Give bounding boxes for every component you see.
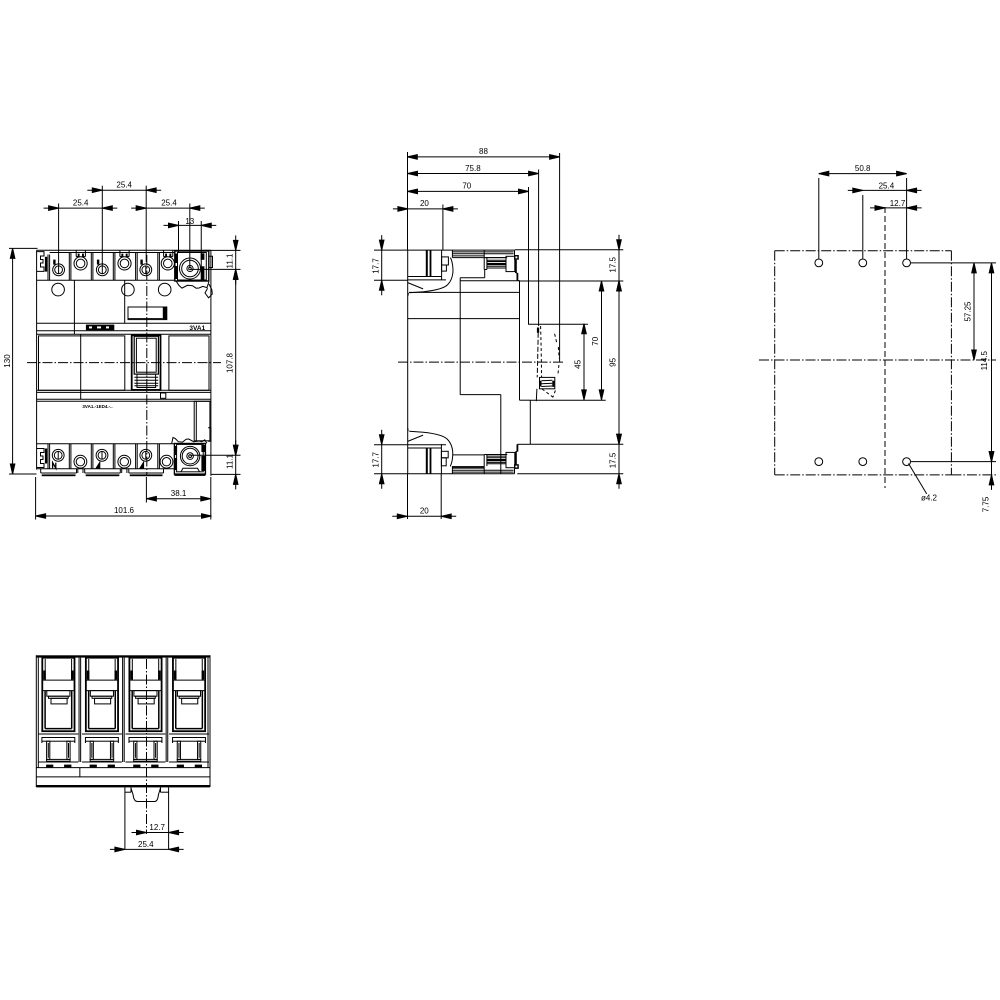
svg-text:17.7: 17.7 [372, 451, 381, 467]
svg-text:25.4: 25.4 [879, 182, 895, 191]
svg-text:70: 70 [591, 336, 600, 345]
svg-text:130: 130 [3, 354, 12, 368]
svg-text:50.8: 50.8 [855, 164, 871, 173]
svg-text:25.4: 25.4 [138, 840, 154, 849]
svg-text:17.5: 17.5 [608, 256, 617, 272]
svg-text:7.75: 7.75 [982, 496, 991, 512]
svg-text:20: 20 [420, 507, 429, 516]
svg-text:17.7: 17.7 [372, 258, 381, 274]
svg-text:ø4.2: ø4.2 [921, 494, 938, 503]
svg-text:13: 13 [185, 217, 194, 226]
svg-text:11.1: 11.1 [226, 453, 235, 469]
svg-text:70: 70 [462, 181, 471, 190]
svg-text:12.7: 12.7 [890, 199, 906, 208]
svg-text:114.5: 114.5 [980, 350, 989, 370]
svg-text:38.1: 38.1 [171, 489, 187, 498]
svg-text:88: 88 [479, 147, 488, 156]
svg-text:25.4: 25.4 [73, 198, 89, 207]
svg-text:20: 20 [420, 199, 429, 208]
svg-text:25.4: 25.4 [161, 198, 177, 207]
svg-text:3VA1: 3VA1 [189, 325, 205, 332]
svg-text:45: 45 [574, 359, 583, 368]
svg-text:17.5: 17.5 [608, 452, 617, 468]
svg-text:11.1: 11.1 [226, 253, 235, 269]
svg-text:95: 95 [608, 357, 617, 366]
svg-text:107.8: 107.8 [226, 352, 235, 373]
svg-text:25.4: 25.4 [116, 180, 132, 189]
svg-text:12.7: 12.7 [149, 823, 165, 832]
svg-text:101.6: 101.6 [114, 506, 135, 515]
svg-text:57.25: 57.25 [964, 301, 973, 322]
svg-text:75.8: 75.8 [465, 164, 481, 173]
svg-text:3VA1.-1ED4.-..: 3VA1.-1ED4.-.. [82, 404, 112, 409]
